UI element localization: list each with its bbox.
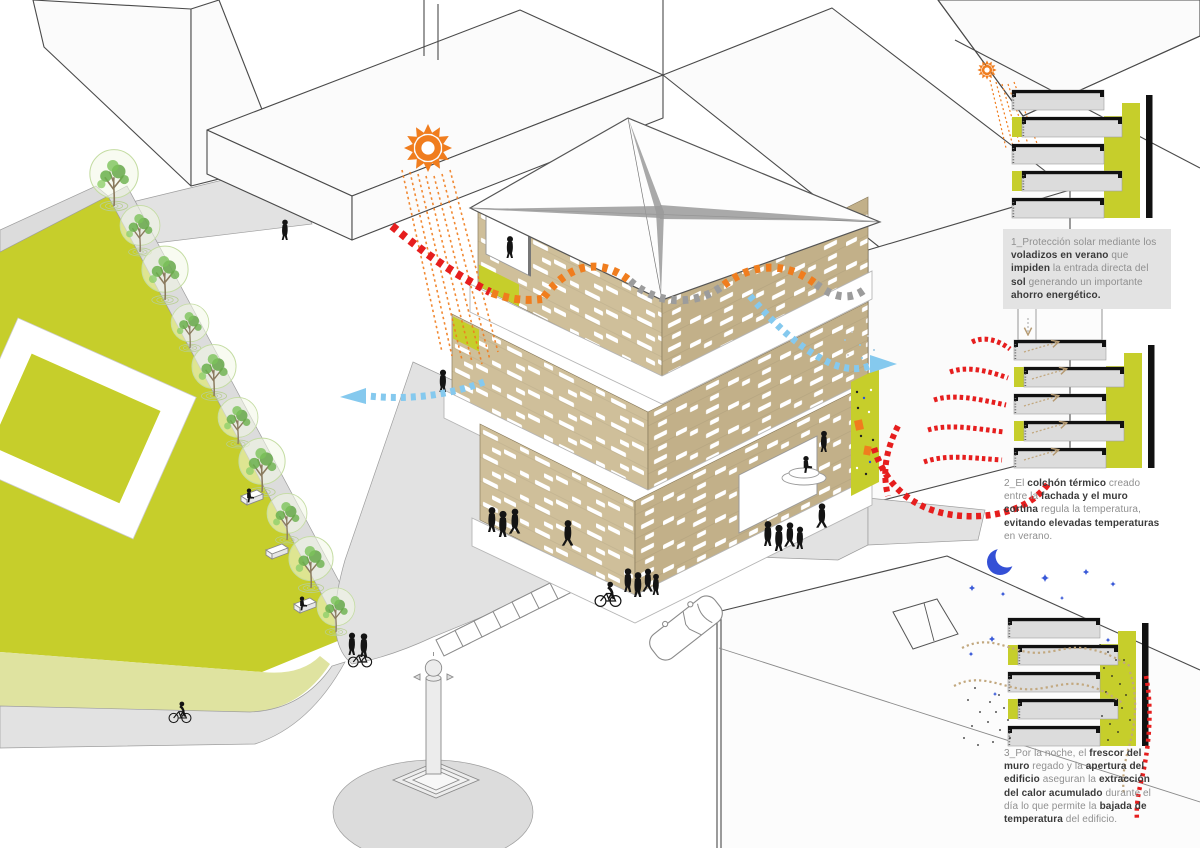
diagram-canvas: 1_Protección solar mediante los voladizo…	[0, 0, 1200, 848]
note-1: 1_Protección solar mediante los voladizo…	[1003, 229, 1171, 309]
wind-arrowhead-left	[340, 388, 366, 404]
illustration	[0, 0, 1200, 848]
section-diagram-1	[1012, 90, 1153, 218]
street-strip-right	[868, 498, 985, 545]
note-3: 3_Por la noche, el frescor del muro rega…	[1004, 747, 1164, 826]
column-monument	[393, 652, 479, 798]
note-2: 2_El colchón térmico creado entre la fac…	[1004, 477, 1164, 543]
